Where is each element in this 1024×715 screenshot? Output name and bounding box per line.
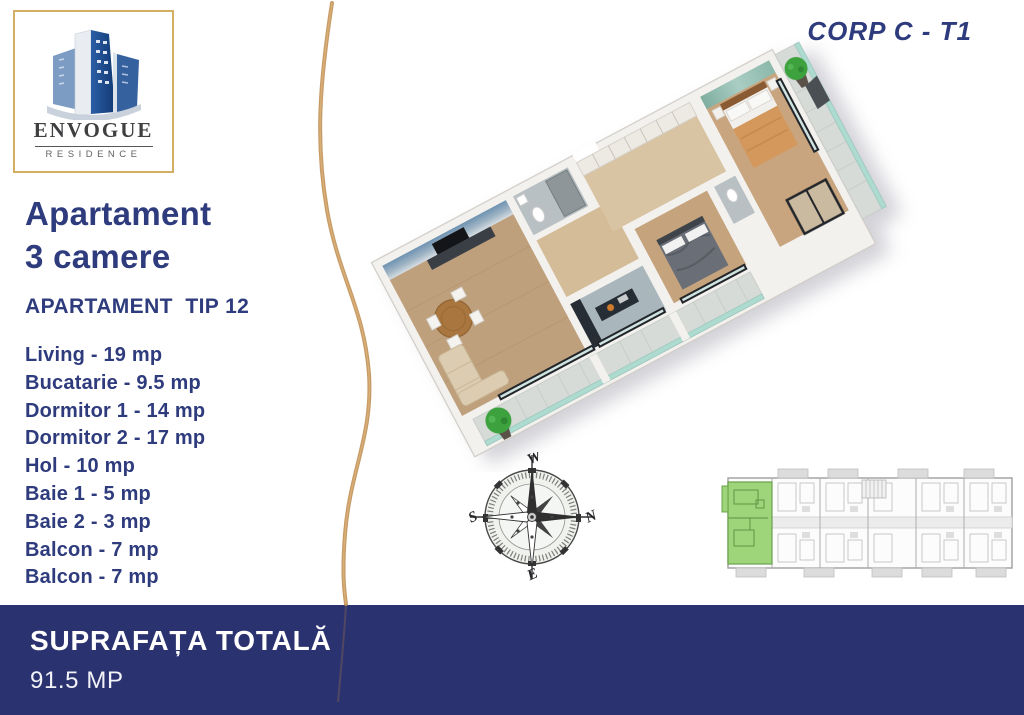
compass-west-label: W — [525, 452, 545, 468]
room-item: Balcon - 7 mp — [25, 537, 325, 565]
room-item: Dormitor 1 - 14 mp — [25, 398, 325, 426]
compass-rose: W N E S — [467, 452, 597, 582]
room-item: Living - 19 mp — [25, 342, 325, 370]
room-item: Dormitor 2 - 17 mp — [25, 425, 325, 453]
title-line-2: 3 camere — [25, 235, 325, 278]
title-line-1: Apartament — [25, 192, 325, 235]
room-item: Balcon - 7 mp — [25, 564, 325, 592]
building-logo-icon — [33, 20, 155, 120]
right-tower-edge — [113, 52, 117, 112]
room-item: Hol - 10 mp — [25, 453, 325, 481]
room-item: Baie 2 - 3 mp — [25, 509, 325, 537]
room-size-list: Living - 19 mp Bucatarie - 9.5 mp Dormit… — [25, 342, 325, 592]
logo-subtitle-text: RESIDENCE — [15, 149, 172, 160]
total-area-value: 91.5 MP — [30, 667, 124, 695]
logo-divider — [35, 146, 153, 147]
logo-brand-text: ENVOGUE — [15, 118, 172, 143]
apartment-title: Apartament 3 camere — [25, 192, 325, 278]
compass-east-label: E — [524, 565, 541, 582]
tower-silver-face — [75, 30, 91, 115]
total-area-label: SUPRAFAȚA TOTALĂ — [30, 625, 332, 657]
compass-north-label: N — [582, 507, 597, 527]
brochure-page: ENVOGUE RESIDENCE Apartament 3 camere AP… — [0, 0, 1024, 715]
floorplan-3d-render — [335, 12, 950, 472]
room-item: Bucatarie - 9.5 mp — [25, 370, 325, 398]
corridor-band — [772, 517, 1012, 528]
building-key-plan — [712, 456, 1024, 586]
room-item: Baie 1 - 5 mp — [25, 481, 325, 509]
stair-core — [862, 480, 886, 498]
highlighted-unit — [722, 482, 772, 564]
total-area-footer: SUPRAFAȚA TOTALĂ 91.5 MP — [0, 605, 1024, 715]
logo-card: ENVOGUE RESIDENCE — [13, 10, 174, 173]
apartment-info-panel: Apartament 3 camere APARTAMENT TIP 12 Li… — [25, 192, 325, 592]
apartment-type-label: APARTAMENT TIP 12 — [25, 295, 325, 319]
